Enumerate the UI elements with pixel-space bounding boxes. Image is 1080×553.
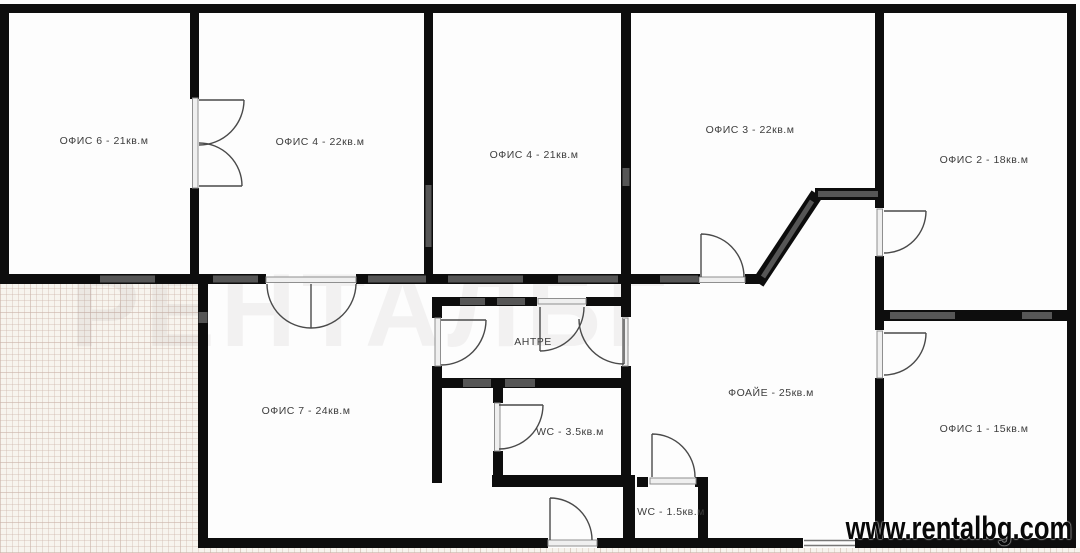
wall [493, 388, 503, 403]
floorplan-svg [0, 0, 1080, 553]
window-segment [199, 312, 208, 323]
window-segment [100, 276, 155, 283]
wall [492, 475, 623, 487]
site-watermark: www.rentalbg.com [845, 510, 1072, 547]
wall [621, 4, 631, 317]
door-frame [877, 209, 883, 256]
room-label-wc-large: WC - 3.5кв.м [536, 426, 604, 438]
wall [0, 4, 9, 284]
window-segment-diagonal [763, 201, 812, 277]
door-symbol-office7-antre [441, 320, 486, 365]
wall [621, 366, 631, 388]
room-label-office1: ОФИС 1 - 15кв.м [940, 423, 1029, 435]
room-label-office2: ОФИС 2 - 18кв.м [940, 154, 1029, 166]
door-arc [550, 498, 592, 540]
door-frame [266, 277, 356, 283]
wall [621, 388, 631, 475]
window-segment [558, 276, 618, 283]
wall [190, 188, 199, 284]
door-arc [579, 319, 624, 364]
door-frame [435, 318, 441, 366]
door-frame [193, 98, 199, 188]
door-symbol-antre-foyer [579, 319, 624, 364]
walls-layer [0, 4, 1076, 548]
window-segment [463, 379, 491, 387]
door-symbol-office1 [884, 333, 926, 375]
door-arc [652, 434, 695, 477]
door-arc [884, 211, 926, 253]
door-arc [199, 100, 244, 145]
wall [493, 451, 503, 475]
door-frame [538, 299, 586, 305]
wall [432, 366, 442, 483]
room-label-antre: АНТРЕ [514, 336, 552, 348]
window-segment [460, 298, 485, 305]
room-label-wc-small: WC - 1.5кв.м [637, 506, 705, 518]
wall [432, 297, 442, 318]
room-label-office3: ОФИС 3 - 22кв.м [706, 124, 795, 136]
door-arc [311, 284, 356, 328]
door-symbol-office4-office7-double [267, 284, 356, 328]
window-segment [623, 168, 630, 186]
window-segment [818, 191, 878, 197]
room-label-office4a: ОФИС 4 - 22кв.м [276, 136, 365, 148]
room-label-office4b: ОФИС 4 - 21кв.м [490, 149, 579, 161]
door-symbol-office6-office4 [199, 100, 244, 186]
room-label-office7: ОФИС 7 - 24кв.м [262, 405, 351, 417]
window-segment [497, 298, 525, 305]
door-symbol-entrance [550, 498, 592, 540]
door-arc [884, 333, 926, 375]
window-segment [426, 185, 432, 247]
window-segment [368, 276, 426, 283]
door-frame [495, 403, 501, 451]
door-arc [441, 320, 486, 365]
door-arc [199, 143, 242, 186]
windows-layer [100, 168, 1052, 387]
floorplan: РЕНТАЛБГ [0, 0, 1080, 553]
window-segment [213, 276, 258, 283]
wall [875, 4, 884, 208]
window-segment [1022, 312, 1052, 319]
wall [190, 4, 199, 99]
door-frame [699, 277, 745, 283]
door-arc [701, 234, 744, 277]
room-label-office6: ОФИС 6 - 21кв.м [60, 135, 149, 147]
door-symbol-wc-small [652, 434, 695, 477]
wall [623, 475, 635, 548]
door-frame [650, 478, 696, 484]
door-frame [877, 331, 883, 378]
doors-layer [199, 100, 926, 540]
door-arc [267, 284, 311, 328]
wall [1067, 4, 1076, 548]
wall [2, 4, 1074, 13]
window-segment [660, 276, 698, 283]
door-symbol-office2 [884, 211, 926, 253]
door-symbol-office3 [701, 234, 744, 277]
room-label-foyer: ФОАЙЕ - 25кв.м [728, 387, 814, 399]
window-segment [505, 379, 535, 387]
wall [637, 477, 648, 487]
wall [198, 538, 548, 548]
window-segment [448, 276, 523, 283]
door-frame [548, 540, 597, 546]
window-segment [890, 312, 955, 319]
wall [875, 256, 884, 330]
